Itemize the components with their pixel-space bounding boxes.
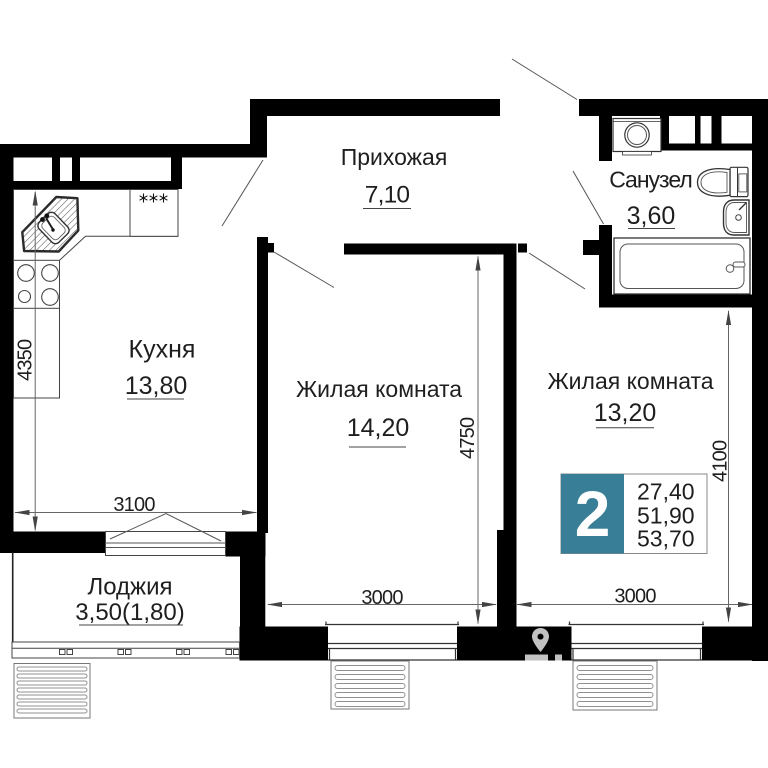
svg-text:Лоджия: Лоджия (87, 574, 172, 601)
svg-text:3100: 3100 (113, 494, 155, 516)
svg-text:4350: 4350 (15, 339, 37, 381)
svg-text:4750: 4750 (457, 417, 479, 459)
svg-text:13,80: 13,80 (125, 372, 188, 400)
svg-text:7,10: 7,10 (365, 182, 410, 209)
svg-text:Санузел: Санузел (609, 167, 692, 193)
svg-text:3000: 3000 (614, 586, 656, 608)
svg-text:4100: 4100 (710, 440, 732, 482)
svg-text:3,50(1,80): 3,50(1,80) (75, 599, 184, 626)
svg-text:14,20: 14,20 (347, 414, 410, 442)
svg-text:27,40: 27,40 (637, 479, 695, 505)
svg-text:3,60: 3,60 (627, 202, 676, 230)
svg-text:Жилая комната: Жилая комната (296, 376, 462, 402)
svg-text:Жилая комната: Жилая комната (547, 368, 713, 394)
svg-text:3000: 3000 (361, 587, 403, 609)
svg-text:2: 2 (575, 478, 611, 550)
svg-text:53,70: 53,70 (637, 526, 695, 552)
svg-text:Кухня: Кухня (129, 336, 196, 364)
svg-text:Прихожая: Прихожая (341, 144, 448, 170)
svg-text:13,20: 13,20 (594, 399, 657, 427)
